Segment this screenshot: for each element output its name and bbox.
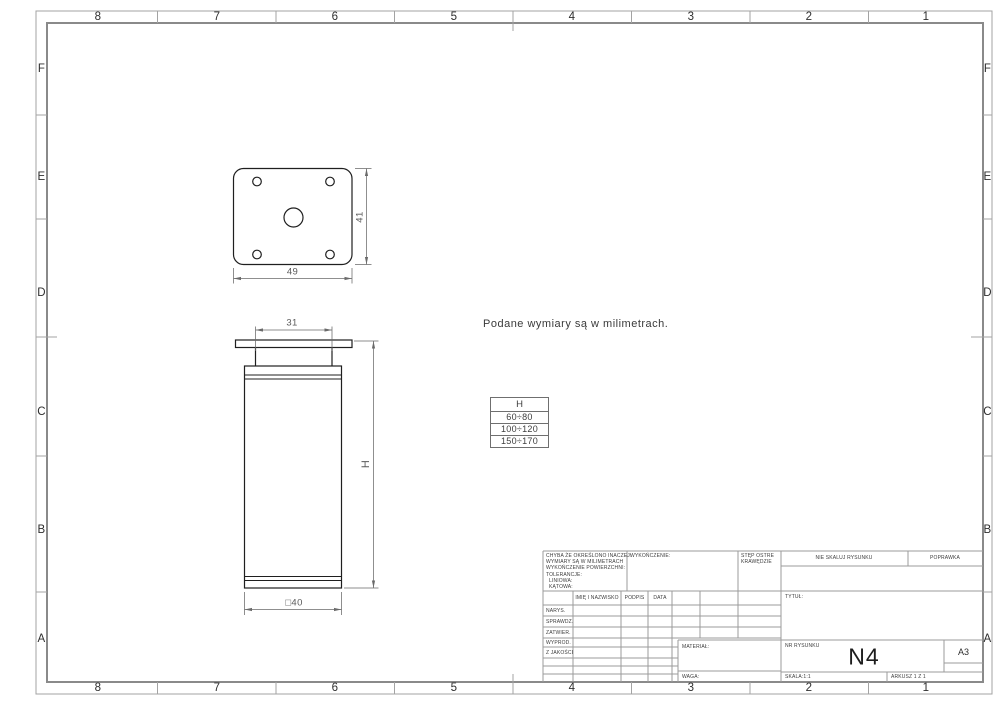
zone-number-top: 6 [332, 11, 339, 23]
zone-letter-right: E [984, 171, 992, 183]
name-header: IMIĘ I NAZWISKO [575, 595, 618, 601]
approval-row-label: NARYS. [546, 608, 565, 614]
dim-leg-height: H [360, 460, 372, 468]
zone-number-top: 8 [95, 11, 102, 23]
tolerance-notes: CHYBA ŻE OKREŚLONO INACZEJ: WYMIARY SĄ W… [546, 553, 631, 590]
zone-number-bottom: 8 [95, 682, 102, 694]
zone-letter-right: F [984, 63, 991, 75]
title-label: TYTUŁ: [785, 594, 803, 600]
zone-number-top: 5 [451, 11, 458, 23]
leg-neck [256, 348, 333, 367]
tolerance-note-line: WYKOŃCZENIE POWIERZCHNI: [546, 565, 631, 571]
plate-hole [326, 177, 335, 186]
date-header: DATA [653, 595, 666, 601]
zone-letter-left: C [37, 406, 46, 418]
dim-plate-width: 49 [287, 266, 298, 277]
height-table-header: H [491, 398, 548, 412]
zone-letter-left: D [37, 287, 46, 299]
height-table-row: 150÷170 [491, 436, 548, 447]
signature-header: PODPIS [625, 595, 645, 601]
zone-letter-left: A [38, 633, 46, 645]
front-view-leg [236, 340, 353, 588]
finish-label: WYKOŃCZENIE: [630, 553, 670, 559]
scale-label: SKALA:1:1 [785, 674, 811, 680]
drawing-number: N4 [848, 644, 879, 671]
no-scale-label: NIE SKALUJ RYSUNKU [815, 555, 872, 561]
zone-letter-right: D [983, 287, 992, 299]
zone-number-top: 1 [923, 11, 930, 23]
zone-number-top: 4 [569, 11, 576, 23]
drawing-number-label: NR RYSUNKU [785, 643, 819, 649]
deburr-label: STĘP OSTRE KRAWĘDZIE [741, 553, 779, 565]
zone-letter-right: A [984, 633, 992, 645]
revision-label: POPRAWKA [930, 555, 960, 561]
dim-plate-depth: 41 [355, 211, 366, 222]
sheet-count-label: ARKUSZ 1 Z 1 [891, 674, 926, 680]
sheet-frame [36, 11, 992, 694]
dim-leg-width: □40 [285, 598, 303, 609]
paper-size: A3 [958, 647, 969, 657]
plate-hole [253, 177, 262, 186]
height-table-row: 100÷120 [491, 424, 548, 436]
zone-letter-right: B [984, 524, 992, 536]
material-label: MATERIAŁ: [682, 644, 709, 650]
plate-center-hole [284, 208, 303, 227]
units-note: Podane wymiary są w milimetrach. [483, 318, 668, 330]
zone-number-bottom: 3 [688, 682, 695, 694]
zone-number-top: 2 [806, 11, 813, 23]
top-view-plate [234, 169, 353, 265]
sheet-geometry [0, 0, 1000, 707]
zone-letter-left: F [38, 63, 45, 75]
weight-label: WAGA: [682, 674, 699, 680]
zone-letter-left: E [38, 171, 46, 183]
approval-row-label: ZATWIER. [546, 630, 571, 636]
zone-letter-right: C [983, 406, 992, 418]
approval-row-label: WYPROD. [546, 640, 571, 646]
zone-number-top: 7 [214, 11, 221, 23]
drawing-sheet: 8 7 6 5 4 3 2 1 8 7 6 5 4 3 2 1 F E D C … [0, 0, 1000, 707]
zone-number-bottom: 5 [451, 682, 458, 694]
height-table-row: 60÷80 [491, 412, 548, 424]
tolerance-note-line: KĄTOWA: [546, 584, 631, 590]
leg-body [245, 366, 342, 588]
plate-hole [253, 250, 262, 259]
plate-hole [326, 250, 335, 259]
zone-number-top: 3 [688, 11, 695, 23]
zone-number-bottom: 1 [923, 682, 930, 694]
approval-row-label: Z JAKOŚCI [546, 650, 573, 656]
dim-neck-width: 31 [286, 317, 297, 328]
zone-number-bottom: 6 [332, 682, 339, 694]
zone-number-bottom: 2 [806, 682, 813, 694]
approval-row-label: SPRAWDZ. [546, 619, 573, 625]
zone-number-bottom: 4 [569, 682, 576, 694]
leg-flange [236, 340, 353, 348]
zone-letter-left: B [38, 524, 46, 536]
zone-number-bottom: 7 [214, 682, 221, 694]
height-variants-table: H 60÷80 100÷120 150÷170 [490, 397, 549, 448]
